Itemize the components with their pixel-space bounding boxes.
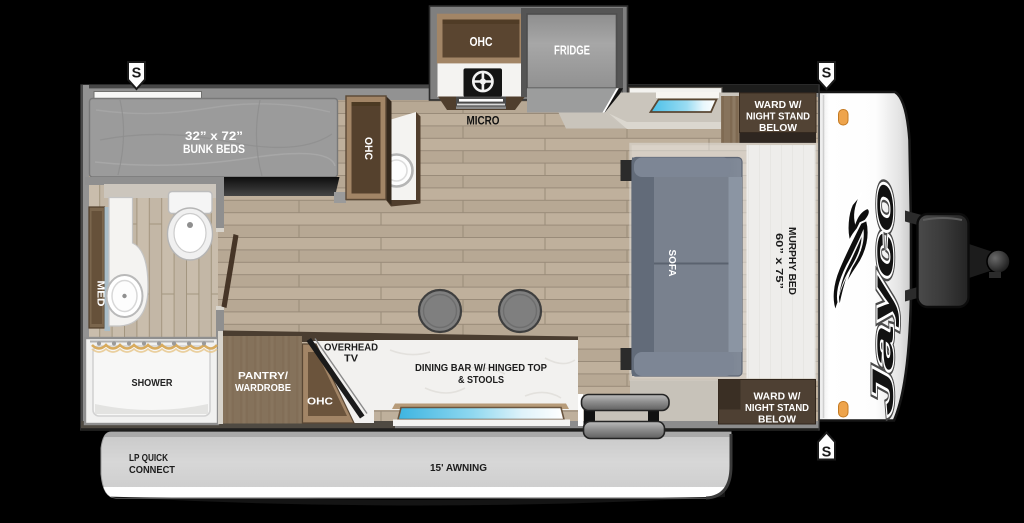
svg-text:BELOW: BELOW <box>758 415 797 426</box>
svg-text:PANTRY/: PANTRY/ <box>238 371 288 382</box>
svg-text:OHC: OHC <box>470 35 493 49</box>
svg-text:MICRO: MICRO <box>467 114 500 128</box>
svg-text:NIGHT STAND: NIGHT STAND <box>745 403 809 414</box>
svg-text:S: S <box>822 66 832 82</box>
svg-text:& STOOLS: & STOOLS <box>458 374 504 386</box>
svg-text:NIGHT STAND: NIGHT STAND <box>746 112 810 123</box>
svg-text:MURPHY BED: MURPHY BED <box>786 227 798 295</box>
svg-text:60” x 75”: 60” x 75” <box>773 233 785 289</box>
svg-text:BELOW: BELOW <box>759 123 798 134</box>
svg-text:FRIDGE: FRIDGE <box>554 44 590 58</box>
svg-text:OHC: OHC <box>362 137 374 160</box>
svg-text:S: S <box>822 445 832 461</box>
svg-text:15' AWNING: 15' AWNING <box>430 462 487 474</box>
svg-text:TV: TV <box>344 354 358 365</box>
svg-text:CONNECT: CONNECT <box>129 464 176 476</box>
svg-text:Jayco: Jayco <box>866 182 899 416</box>
svg-text:WARD W/: WARD W/ <box>755 100 802 111</box>
svg-text:WARD W/: WARD W/ <box>754 392 801 403</box>
svg-text:OHC: OHC <box>307 397 333 408</box>
svg-text:SOFA: SOFA <box>666 250 678 277</box>
svg-text:32” x 72”: 32” x 72” <box>185 131 243 143</box>
svg-text:WARDROBE: WARDROBE <box>235 383 291 394</box>
svg-text:LP QUICK: LP QUICK <box>129 452 168 464</box>
svg-text:DINING BAR W/ HINGED TOP: DINING BAR W/ HINGED TOP <box>415 362 547 374</box>
svg-text:BUNK BEDS: BUNK BEDS <box>183 144 245 156</box>
svg-text:S: S <box>132 66 142 82</box>
svg-text:OVERHEAD: OVERHEAD <box>324 343 378 354</box>
svg-text:SHOWER: SHOWER <box>132 377 173 389</box>
